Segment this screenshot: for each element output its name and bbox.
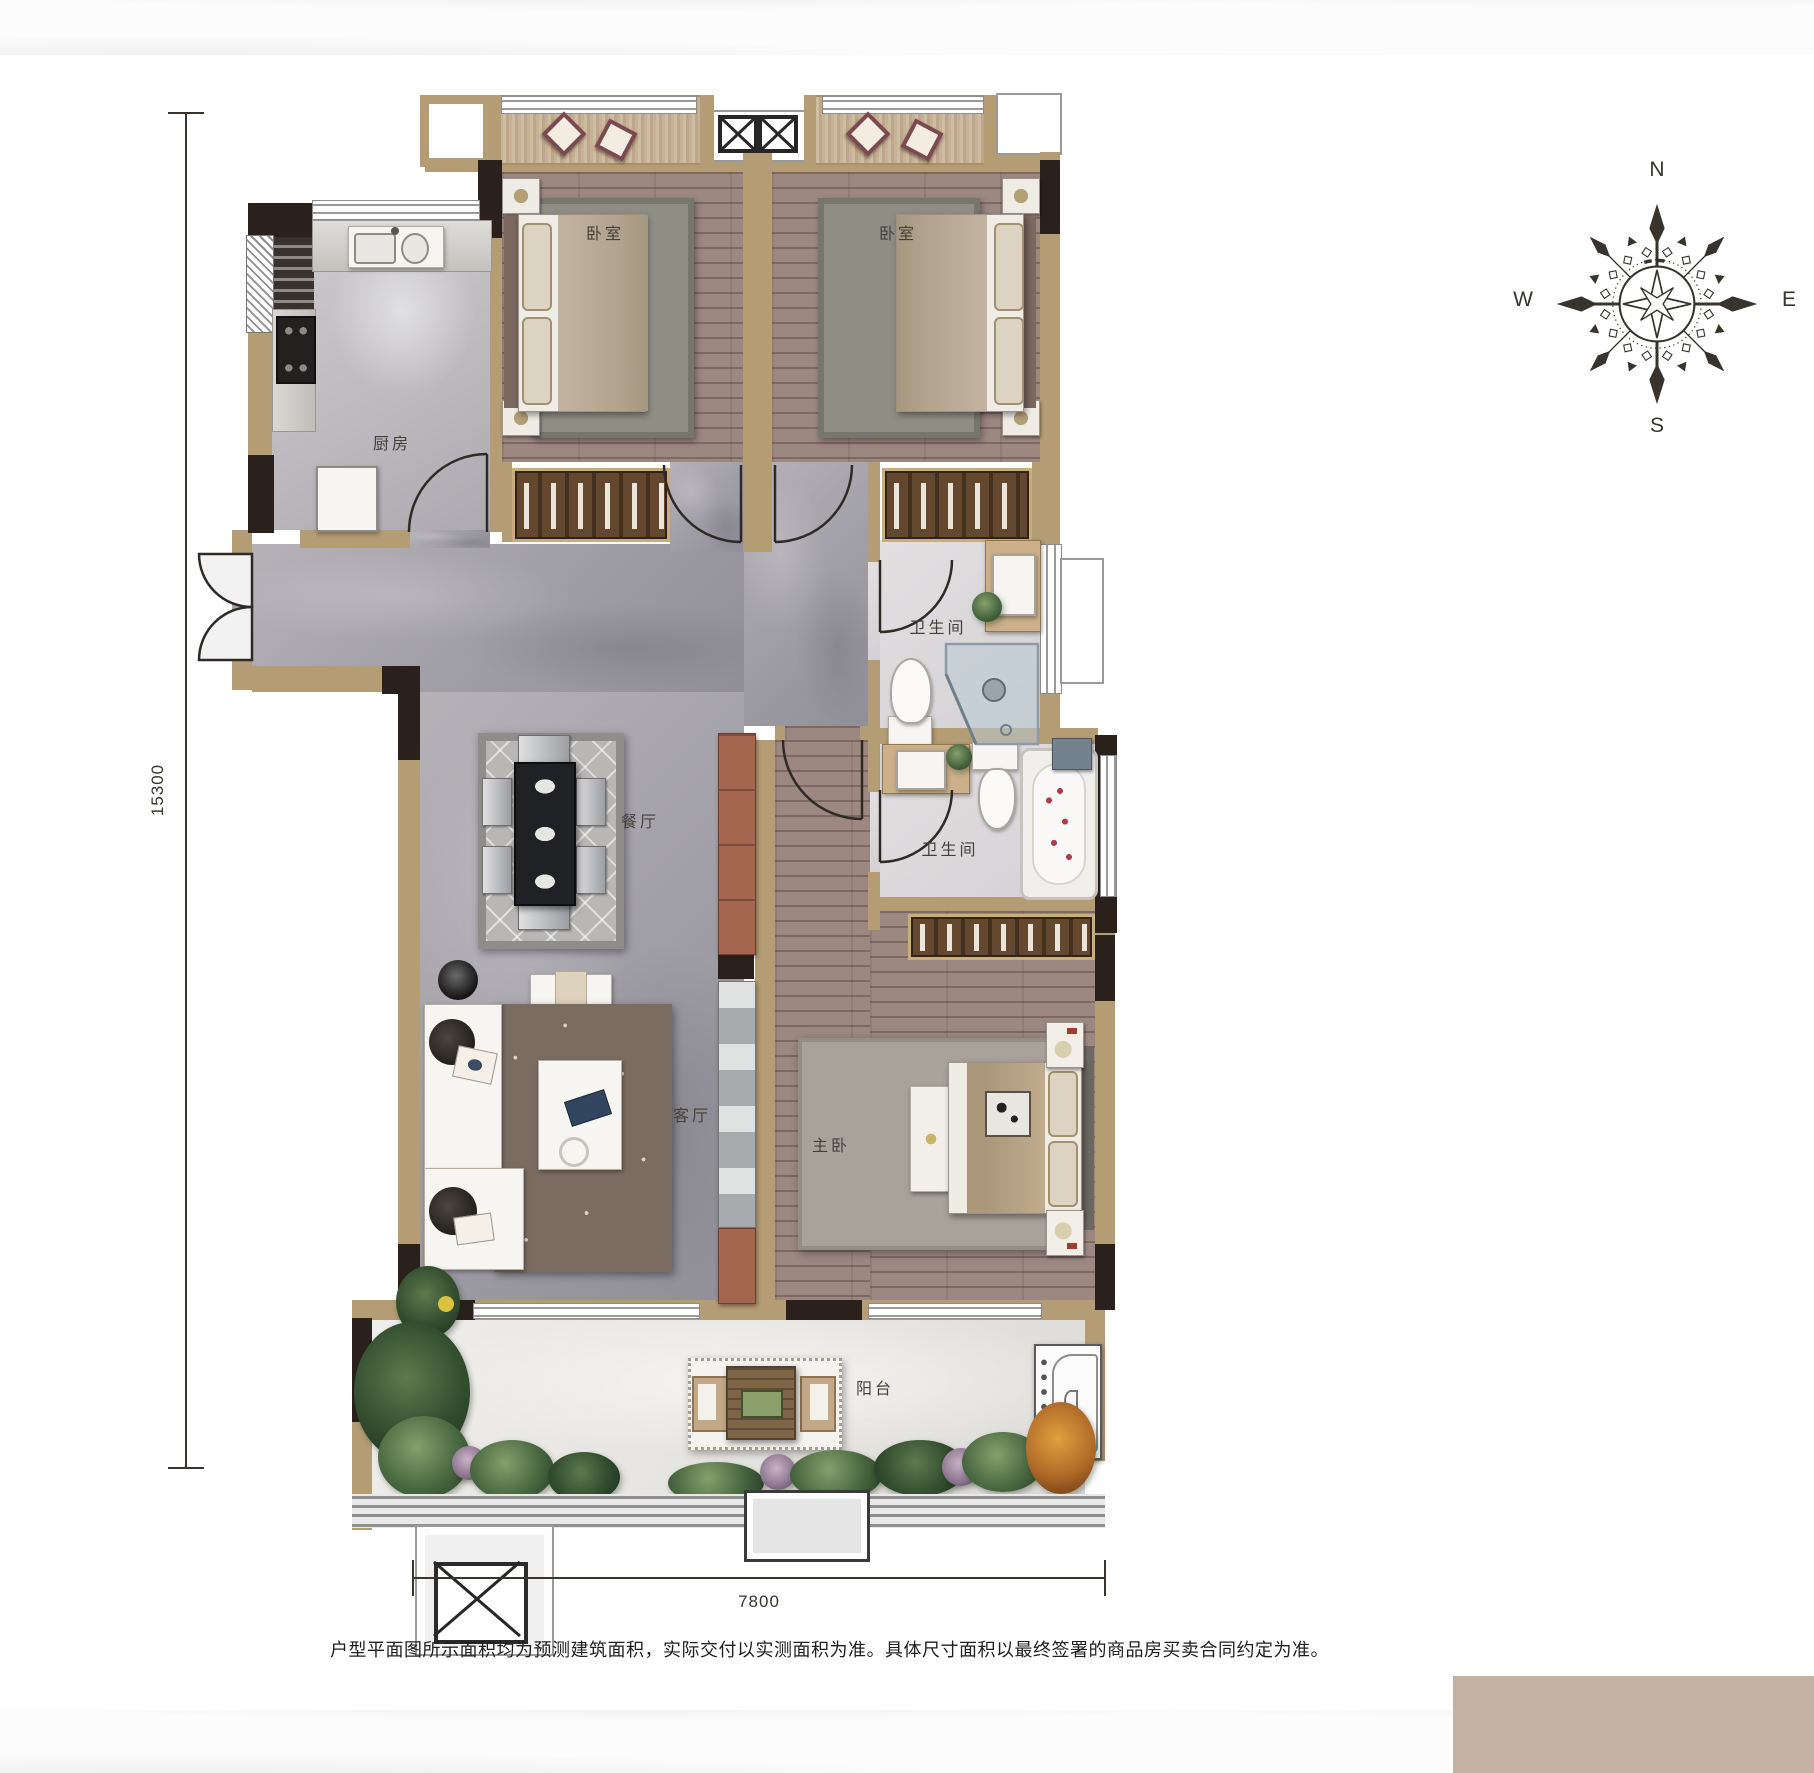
bathroom2-label: 卫生间: [921, 836, 978, 860]
bedroom2-label: 卧室: [879, 220, 917, 244]
floorplan-page: { "rooms": { "bedroom1": "卧室", "bedroom2…: [0, 0, 1814, 1773]
bathroom1-label: 卫生间: [909, 614, 966, 638]
compass-south-label: S: [1640, 414, 1674, 438]
compass-east-label: E: [1772, 288, 1806, 312]
plan-footnote: 户型平面图所示面积均为预测建筑面积，实际交付以实测面积为准。具体尺寸面积以最终签…: [330, 1636, 1430, 1662]
dining-label: 餐厅: [621, 808, 659, 832]
living-label: 客厅: [673, 1102, 711, 1126]
compass-west-label: W: [1506, 288, 1540, 312]
balcony-label: 阳台: [856, 1375, 894, 1399]
horizontal-dimension-label: 7800: [738, 1592, 780, 1612]
compass-north-label: N: [1640, 158, 1674, 182]
master-label: 主卧: [812, 1132, 850, 1156]
kitchen-label: 厨房: [373, 430, 411, 454]
bedroom1-label: 卧室: [586, 220, 624, 244]
vertical-dimension-label: 15300: [148, 764, 168, 816]
